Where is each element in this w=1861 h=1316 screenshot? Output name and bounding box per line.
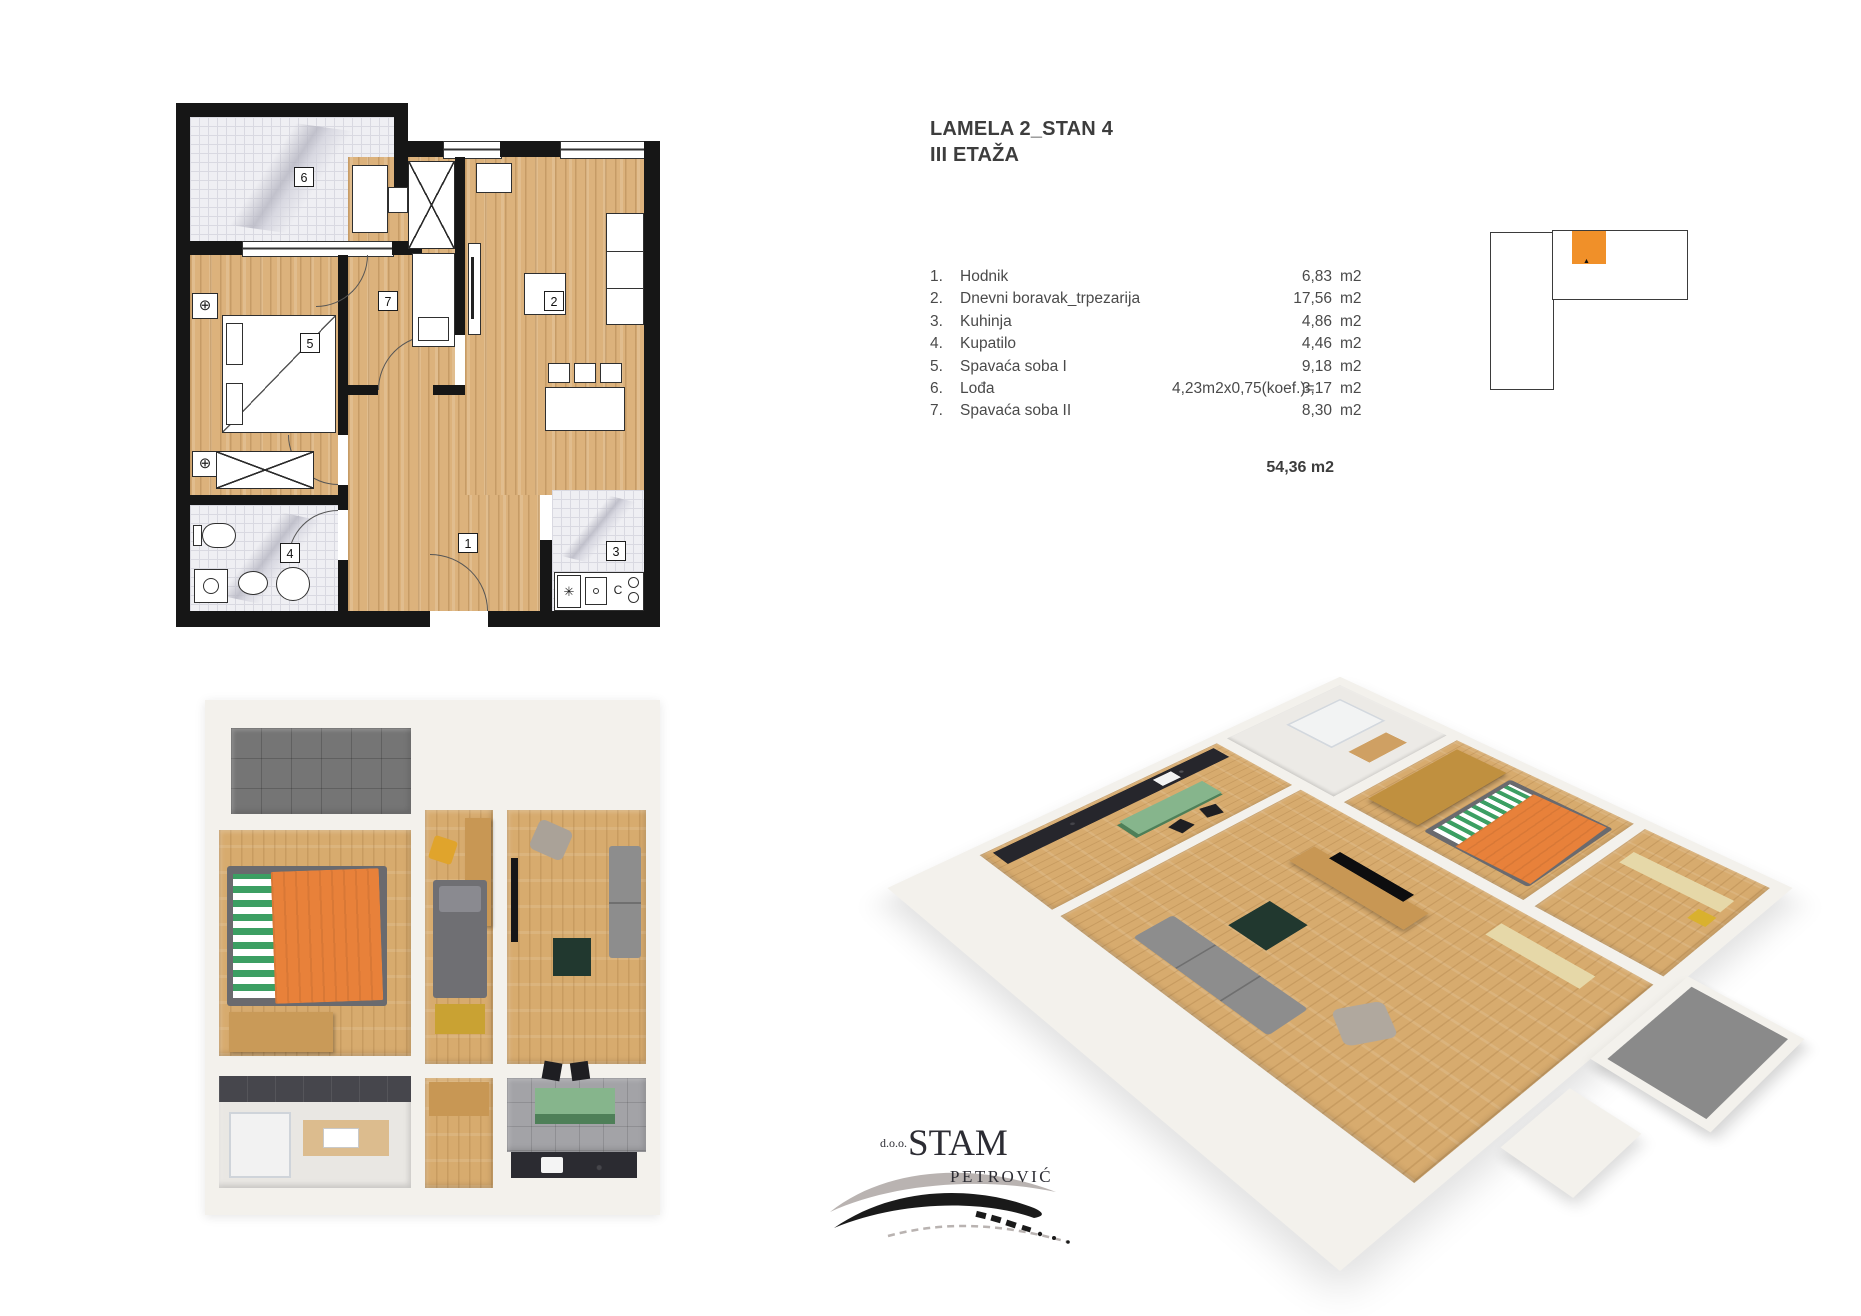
r1-vanity-sink <box>323 1128 359 1148</box>
logo-name: STAM <box>908 1122 1008 1165</box>
desk <box>352 165 388 233</box>
iso-shower <box>1286 699 1385 748</box>
page-title: LAMELA 2_STAN 4 III ETAŽA <box>930 116 1340 168</box>
iso-annex <box>1501 1088 1642 1198</box>
sofa <box>606 213 644 325</box>
bedroom2-window <box>443 141 502 159</box>
iso-armchair <box>1331 1001 1399 1047</box>
r1-tv-strip <box>511 858 518 942</box>
iso-living <box>1060 790 1653 1183</box>
toilet-tank <box>193 525 202 546</box>
room-label-hall: 1 <box>458 533 478 553</box>
logo-prefix: d.o.o. <box>880 1136 907 1151</box>
stove-label: C <box>611 575 625 608</box>
r1-shower <box>229 1112 291 1178</box>
freezer-icon: ✳ <box>557 575 581 608</box>
r1-bed2-pillow <box>439 886 481 912</box>
room-label-living: 2 <box>544 291 564 311</box>
washer-drum-icon <box>203 578 219 594</box>
room-label-kitchen: 3 <box>606 541 626 561</box>
pillow <box>226 323 243 365</box>
dining-chair <box>600 363 622 383</box>
iso-bathroom <box>1227 685 1447 797</box>
iso-loggia <box>1591 976 1805 1132</box>
brochure-page: ⊕ ⊕ ✳ C 6 <box>0 0 1861 1316</box>
drawer <box>418 317 449 341</box>
r1-coffee-table <box>553 938 591 976</box>
iso-counter <box>993 748 1229 864</box>
burner-icon <box>628 577 639 588</box>
logo-surname: PETROVIĆ <box>950 1167 1053 1187</box>
living-floor <box>465 157 644 495</box>
iso-bedroom2 <box>1535 829 1770 976</box>
dining-chair <box>548 363 570 383</box>
r1-chair-dark <box>542 1061 563 1082</box>
wardrobe <box>408 161 455 249</box>
r1-chair-dark <box>570 1061 590 1081</box>
room-row: 3. Kuhinja 4,86 m2 <box>930 311 1340 333</box>
armchair <box>476 163 512 193</box>
floor-plan-2d: ⊕ ⊕ ✳ C 6 <box>176 95 660 627</box>
r1-bench-yellow <box>435 1004 485 1034</box>
r1-counter <box>511 1152 637 1178</box>
iso-bin-yellow <box>1687 909 1716 927</box>
radiator-icon: ⊕ <box>192 451 218 477</box>
title-line2: III ETAŽA <box>930 142 1340 168</box>
room-label-bedroom2: 7 <box>378 291 398 311</box>
desk-chair <box>388 187 408 213</box>
r1-sofa <box>609 846 641 958</box>
shower <box>276 567 310 601</box>
r1-dresser <box>229 1012 333 1052</box>
iso-bench <box>1485 923 1595 988</box>
iso-island-side <box>1117 783 1223 838</box>
iso-tv <box>1329 852 1414 902</box>
pillow <box>226 383 243 425</box>
iso-wardrobe <box>1368 749 1506 825</box>
key-plan-wing-vertical <box>1490 232 1554 390</box>
radiator-icon: ⊕ <box>192 293 218 319</box>
iso-bath-shelf <box>1348 732 1407 762</box>
dining-chair <box>574 363 596 383</box>
burner-icon <box>628 592 639 603</box>
r1-hall-desk <box>429 1082 489 1116</box>
iso-bed-frame <box>1424 780 1613 888</box>
r1-bath-tilewall <box>219 1076 411 1102</box>
iso-coffee-table <box>1228 901 1307 951</box>
sink-drain <box>593 588 599 594</box>
iso-chair-dark <box>1199 804 1224 818</box>
room-row: 5. Spavaća soba I 9,18 m2 <box>930 356 1340 378</box>
dining-table <box>545 387 625 431</box>
iso-sideboard <box>1289 847 1428 930</box>
room-row: 6. Lođa 4,23m2x0,75(koef.)= 3,17 m2 <box>930 378 1340 400</box>
bath-sink <box>238 571 268 595</box>
iso-counter-sink <box>1153 771 1181 786</box>
iso-island-top <box>1119 781 1222 834</box>
room-row: 1. Hodnik 6,83 m2 <box>930 266 1340 288</box>
iso-desk <box>1619 852 1734 912</box>
tv-icon <box>471 257 474 319</box>
iso-bedroom1 <box>1344 740 1634 900</box>
tv-cabinet <box>468 243 481 335</box>
room-list: 1. Hodnik 6,83 m2 2. Dnevni boravak_trpe… <box>930 266 1340 423</box>
wardrobe <box>216 451 314 489</box>
iso-sofa <box>1133 915 1308 1036</box>
room-row: 2. Dnevni boravak_trpezarija 17,56 m2 <box>930 288 1340 310</box>
toilet <box>202 523 236 548</box>
render-top-view <box>205 700 660 1215</box>
room-label-bath: 4 <box>280 543 300 563</box>
iso-kitchen <box>980 743 1292 910</box>
living-window <box>560 141 650 159</box>
r1-island-top <box>535 1088 615 1114</box>
room-row: 4. Kupatilo 4,46 m2 <box>930 333 1340 355</box>
r1-bed-orange <box>271 868 384 1004</box>
title-line1: LAMELA 2_STAN 4 <box>930 116 1340 142</box>
unit-marker-icon: ▲ <box>1583 258 1590 265</box>
info-panel: LAMELA 2_STAN 4 III ETAŽA 1. Hodnik 6,83… <box>930 116 1340 477</box>
render-isometric <box>1020 568 1660 1208</box>
total-area: 54,36 m2 <box>930 459 1340 477</box>
iso-bed-green <box>1433 784 1541 847</box>
room-label-loggia: 6 <box>294 167 314 187</box>
r1-loggia <box>231 728 411 814</box>
iso-chair-dark <box>1168 819 1194 834</box>
company-logo: d.o.o. STAM PETROVIĆ <box>828 1122 1078 1282</box>
room-row: 7. Spavaća soba II 8,30 m2 <box>930 400 1340 422</box>
iso-bed-orange <box>1455 794 1606 884</box>
r1-counter-sink <box>541 1157 563 1173</box>
room-label-bedroom1: 5 <box>300 333 320 353</box>
